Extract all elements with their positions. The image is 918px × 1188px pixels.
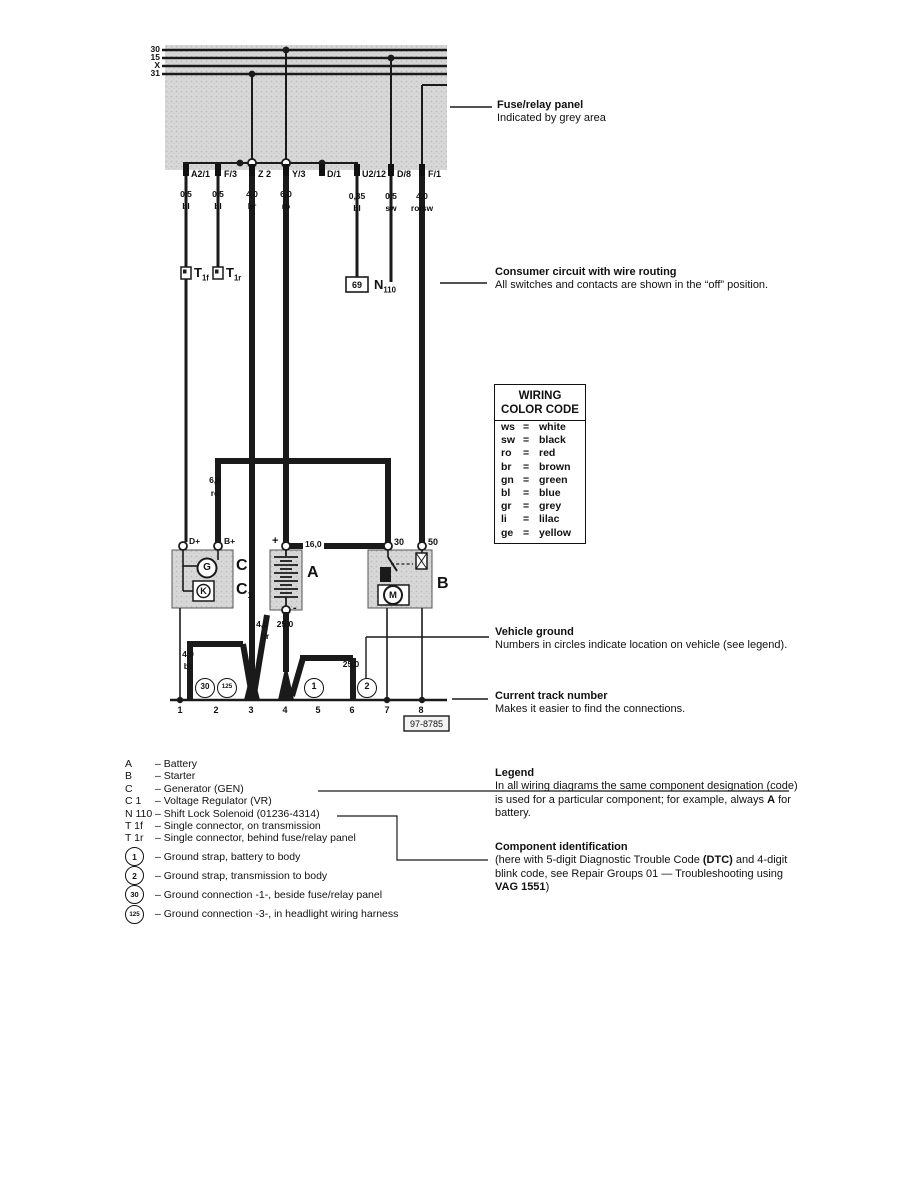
wire-color: ro [274,202,298,211]
color-code-row: li=lilac [495,513,585,526]
generator-g-glyph: G [199,562,215,573]
wire-color: ro/sw [408,204,436,213]
wire-gauge: 0,35 [343,192,371,201]
legend-ground-row: 2– Ground strap, transmission to body [125,866,398,885]
component-label-c: C [236,558,248,574]
color-code-row: br=brown [495,461,585,474]
wire-gauge: 4,0 [408,192,436,201]
motor-m-glyph: M [386,590,400,601]
annotation-track-body: Makes it easier to find the connections. [495,703,685,717]
legend-row: C 1– Voltage Regulator (VR) [125,795,356,807]
legend-ground-list: 1– Ground strap, battery to body 2– Grou… [125,847,398,924]
ground-circle-30: 30 [195,678,215,698]
component-label-a: A [307,565,319,581]
legend-ground-row: 30– Ground connection -1-, beside fuse/r… [125,885,398,904]
color-code-row: gn=green [495,474,585,487]
terminal-label: A2/1 [191,169,210,179]
connector-icons [181,267,368,292]
track-number: 3 [244,705,258,715]
ground-circle-125: 125 [217,678,237,698]
color-code-row: gr=grey [495,500,585,513]
diagram-linework [0,0,918,1188]
wire-color: sw [379,204,403,213]
terminal-label: F/1 [428,169,441,179]
track-number: 1 [173,705,187,715]
terminal-label: Y/3 [292,169,306,179]
terminal-dplus-label: D+ [189,537,200,546]
wiring-diagram-page: 30 15 X 31 A2/1 F/3 Z 2 Y/3 D/1 U2/12 D/… [0,0,918,1188]
wire-gauge-16: 16,0 [303,540,324,549]
annotation-legend-body: In all wiring diagrams the same componen… [495,780,815,821]
color-code-row: bl=blue [495,487,585,500]
annotation-vground-body: Numbers in circles indicate location on … [495,639,787,653]
legend-ground-row: 1– Ground strap, battery to body [125,847,398,866]
wire-color: bl [174,202,198,211]
starter-symbol [368,550,432,703]
ground-circle-1: 1 [304,678,324,698]
terminal-label: D/8 [397,169,411,179]
wire-color: br [178,662,198,671]
wire-gauge: 6,0 [203,476,227,485]
battery-symbol [270,550,302,610]
battery-minus-label: - [293,602,297,616]
legend-row: A– Battery [125,758,356,770]
color-code-row: sw=black [495,434,585,447]
color-code-row: ro=red [495,447,585,460]
connector-label-t1r: T1r [226,266,241,285]
wire-gauge: 25,0 [338,660,364,669]
component-label-n110: N110 [374,278,396,297]
annotation-consumer-body: All switches and contacts are shown in t… [495,279,768,293]
annotation-legend-title: Legend [495,767,534,780]
wire-color: br [255,632,275,641]
terminal-label: U2/12 [362,169,386,179]
track-number: 8 [414,705,428,715]
battery-plus-label: + [272,535,278,549]
component-label-c1: C1 [236,582,253,604]
wire-gauge: 4,0 [240,190,264,199]
annotation-component-id-body: (here with 5-digit Diagnostic Trouble Co… [495,854,825,895]
fuse-relay-panel-area [165,45,447,170]
wire-gauge: 0,5 [206,190,230,199]
component-label-b: B [437,576,449,592]
annotation-component-id-title: Component identification [495,841,628,854]
track-number: 5 [311,705,325,715]
wire-gauge: 6,0 [274,190,298,199]
legend-row: B– Starter [125,770,356,782]
terminal-label: D/1 [327,169,341,179]
legend-row: T 1f– Single connector, on transmission [125,820,356,832]
wire-color: bl [343,204,371,213]
regulator-k-glyph: K [198,586,209,596]
connector-label-69: 69 [346,280,368,290]
legend-ground-row: 125– Ground connection -3-, in headlight… [125,905,398,924]
wire-gauge: 4,0 [178,650,198,659]
wire-gauge: 4,0 [252,620,272,629]
annotation-vground-title: Vehicle ground [495,626,574,639]
diagram-number: 97-8785 [405,719,448,729]
wire-color: ro [203,489,227,498]
terminal-label: F/3 [224,169,237,179]
annotation-consumer-title: Consumer circuit with wire routing [495,266,677,279]
terminal-30-label: 30 [394,537,404,547]
color-code-row: ge=yellow [495,527,585,540]
terminal-50-label: 50 [428,537,438,547]
track-number: 2 [209,705,223,715]
terminal-label: Z 2 [258,169,271,179]
track-number: 7 [380,705,394,715]
track-number: 4 [278,705,292,715]
legend-component-list: A– Battery B– Starter C– Generator (GEN)… [125,758,356,845]
annotation-fuse-body: Indicated by grey area [497,112,606,126]
connector-label-t1f: T1f [194,266,209,285]
wire-gauge: 25,0 [272,620,298,629]
ground-circle-2: 2 [357,678,377,698]
wire-gauge: 0,5 [174,190,198,199]
wire-color: bl [206,202,230,211]
terminal-bplus-label: B+ [224,537,235,546]
color-code-row: ws=white [495,421,585,434]
color-code-title: WIRING COLOR CODE [495,385,585,421]
legend-row: N 110– Shift Lock Solenoid (01236-4314) [125,808,356,820]
legend-row: C– Generator (GEN) [125,783,356,795]
annotation-track-title: Current track number [495,690,607,703]
wiring-color-code-box: WIRING COLOR CODE ws=white sw=black ro=r… [494,384,586,544]
legend-row: T 1r– Single connector, behind fuse/rela… [125,832,356,844]
annotation-fuse-title: Fuse/relay panel [497,99,583,112]
wire-gauge: 0,5 [379,192,403,201]
wire-color: br [240,202,264,211]
track-number: 6 [345,705,359,715]
bus-label-31: 31 [138,69,160,78]
